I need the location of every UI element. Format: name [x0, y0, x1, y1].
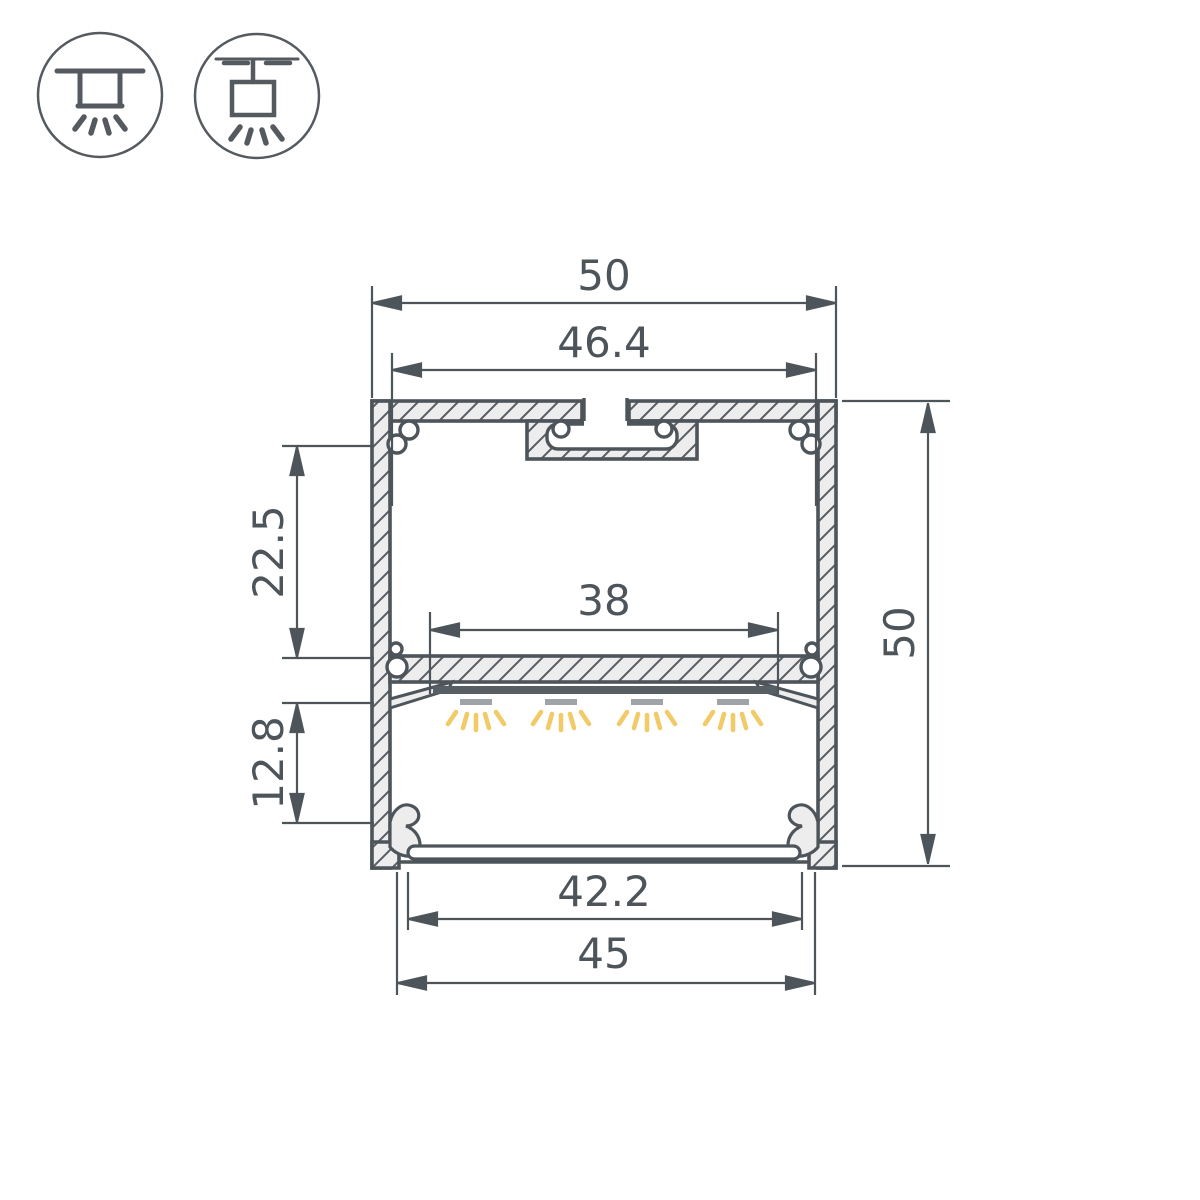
- led-module: [545, 699, 577, 705]
- arrowhead: [291, 629, 304, 657]
- shelf-wings: [390, 682, 818, 708]
- arrowhead: [787, 364, 815, 377]
- light-rays: [231, 127, 282, 143]
- led-pcb: [433, 686, 777, 694]
- arrowhead: [398, 977, 426, 990]
- arrowhead: [431, 624, 459, 637]
- technical-drawing-page: 50 46.4 38 22.5: [0, 0, 1200, 1200]
- dimension-label-bottom-width: 45: [577, 929, 630, 978]
- dimension-diffuser-width: 42.2: [408, 867, 802, 930]
- icon-circle: [195, 34, 319, 158]
- arrowhead: [807, 297, 835, 310]
- top-plate-left: [372, 401, 582, 421]
- dimension-label-top-inner-width: 46.4: [557, 318, 651, 367]
- profile-technical-drawing: 50 46.4 38 22.5: [0, 0, 1200, 1200]
- arrowhead: [922, 404, 935, 432]
- right-wing: [756, 682, 818, 708]
- led-module: [717, 699, 749, 705]
- screw-port: [388, 435, 406, 453]
- led-shelf: [390, 656, 818, 682]
- led-strip: [433, 686, 777, 730]
- shelf-notch: [806, 643, 818, 655]
- arrowhead: [393, 364, 421, 377]
- dimension-label-led-platform-width: 38: [577, 576, 630, 625]
- shelf-notch: [390, 643, 402, 655]
- left-wall: [372, 401, 390, 868]
- dimension-label-diffuser-width: 42.2: [557, 867, 651, 916]
- light-ray-group: [448, 712, 504, 730]
- led-light-rays: [448, 712, 761, 730]
- led-module: [631, 699, 663, 705]
- light-ray-group: [705, 712, 761, 730]
- channel-ear: [656, 421, 672, 437]
- dimension-label-outer-width: 50: [577, 251, 630, 300]
- arrowhead: [373, 297, 401, 310]
- arrowhead: [786, 977, 814, 990]
- channel-ear: [553, 421, 569, 437]
- light-rays: [75, 117, 125, 133]
- suspended-mount-icon: [195, 34, 319, 158]
- surface-mount-icon: [38, 33, 162, 157]
- left-wing: [390, 682, 452, 708]
- arrowhead: [409, 913, 437, 926]
- top-plate-right: [629, 401, 836, 421]
- dimension-outer-height: 50: [842, 401, 950, 866]
- dimension-label-outer-height: 50: [875, 606, 924, 659]
- dimension-label-lower-chamber-height: 12.8: [244, 716, 293, 810]
- icon-circle: [38, 33, 162, 157]
- shelf-notch: [387, 657, 407, 677]
- dimension-label-upper-chamber-height: 22.5: [244, 505, 293, 599]
- diffuser: [399, 846, 809, 862]
- dimension-upper-chamber-height: 22.5: [244, 446, 374, 658]
- arrowhead: [922, 835, 935, 863]
- diffuser-plate: [408, 846, 800, 859]
- arrowhead: [749, 624, 777, 637]
- dimensions: 50 46.4 38 22.5: [244, 251, 950, 995]
- light-ray-group: [619, 712, 675, 730]
- screw-port: [802, 435, 820, 453]
- right-wall: [818, 401, 836, 868]
- led-module: [460, 699, 492, 705]
- light-ray-group: [533, 712, 589, 730]
- dimension-lower-chamber-height: 12.8: [244, 703, 374, 823]
- arrowhead: [291, 447, 304, 475]
- shelf-notch: [801, 657, 821, 677]
- arrowhead: [773, 913, 801, 926]
- profile-body: [372, 401, 836, 868]
- mount-icons: [38, 33, 319, 158]
